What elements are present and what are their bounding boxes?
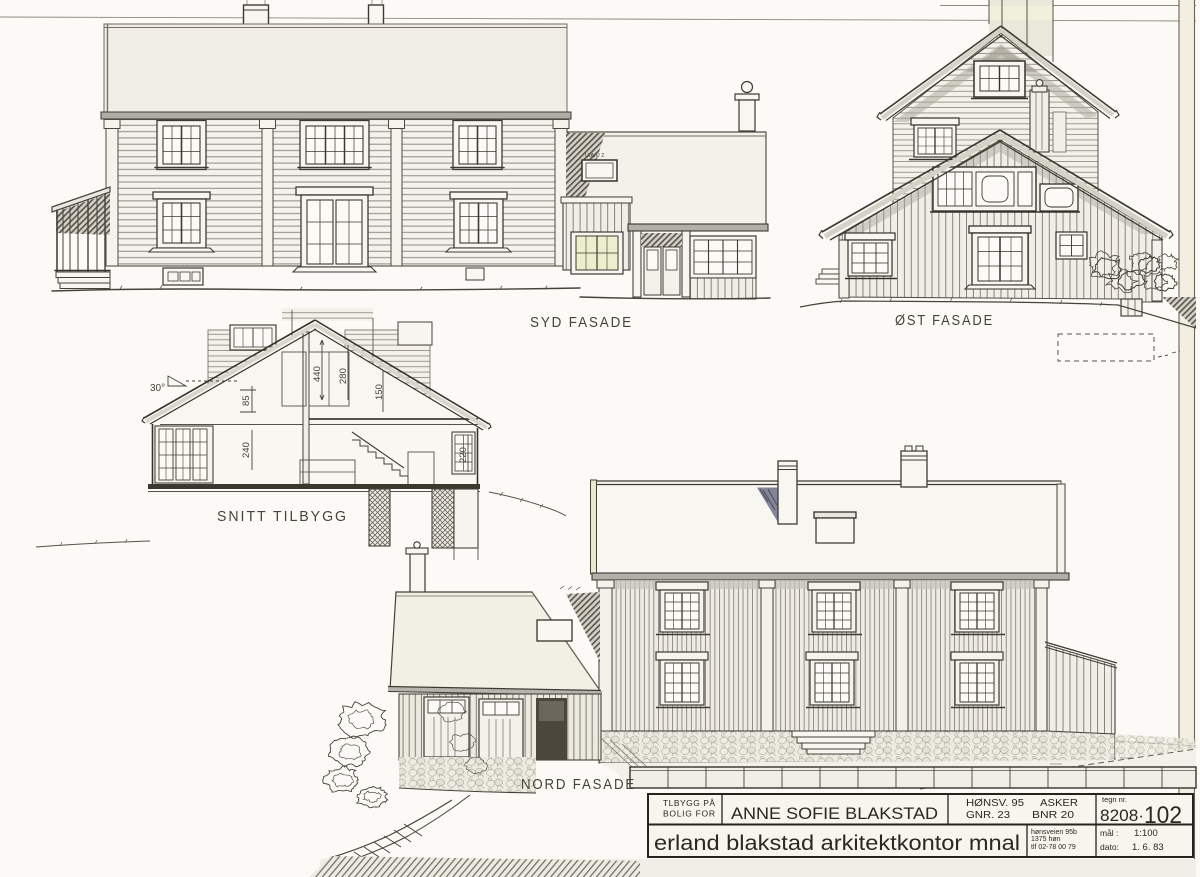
svg-text:30°: 30°: [150, 383, 165, 394]
svg-text:ASKER: ASKER: [1040, 798, 1078, 809]
svg-text:150: 150: [374, 384, 385, 400]
svg-text:ANNE SOFIE BLAKSTAD: ANNE SOFIE BLAKSTAD: [731, 804, 938, 823]
svg-text:280: 280: [338, 368, 349, 384]
svg-text:1:100: 1:100: [1134, 828, 1158, 839]
svg-text:U/A/U 2: U/A/U 2: [585, 153, 604, 159]
svg-text:hønsveien 95b: hønsveien 95b: [1031, 829, 1077, 836]
svg-text:8208·: 8208·: [1100, 806, 1144, 825]
svg-text:tegn nr.: tegn nr.: [1102, 795, 1127, 804]
svg-text:dato:: dato:: [1100, 842, 1119, 852]
svg-text:tlf 02-78 00 79: tlf 02-78 00 79: [1031, 844, 1076, 851]
svg-text:220: 220: [458, 447, 469, 463]
svg-text:102: 102: [1144, 802, 1182, 829]
svg-text:erland blakstad arkitektkontor: erland blakstad arkitektkontor mnal: [654, 831, 1020, 855]
svg-text:HØNSV. 95: HØNSV. 95: [966, 798, 1024, 809]
svg-text:GNR. 23: GNR. 23: [966, 810, 1010, 821]
svg-text:BNR 20: BNR 20: [1032, 810, 1075, 821]
svg-text:SNITT TILBYGG: SNITT TILBYGG: [217, 509, 348, 525]
svg-text:240: 240: [241, 442, 252, 458]
svg-text:85: 85: [241, 395, 252, 406]
svg-text:BOLIG FOR: BOLIG FOR: [663, 809, 715, 819]
svg-text:1. 6. 83: 1. 6. 83: [1132, 842, 1164, 853]
svg-text:SYD FASADE: SYD FASADE: [530, 315, 633, 331]
svg-text:ØST FASADE: ØST FASADE: [895, 313, 994, 329]
svg-text:TLBYGG PÅ: TLBYGG PÅ: [663, 798, 715, 808]
svg-text:1375 høn: 1375 høn: [1031, 836, 1061, 843]
svg-text:mål :: mål :: [1100, 828, 1118, 838]
svg-text:NORD FASADE: NORD FASADE: [521, 777, 636, 793]
svg-text:440: 440: [312, 366, 323, 382]
